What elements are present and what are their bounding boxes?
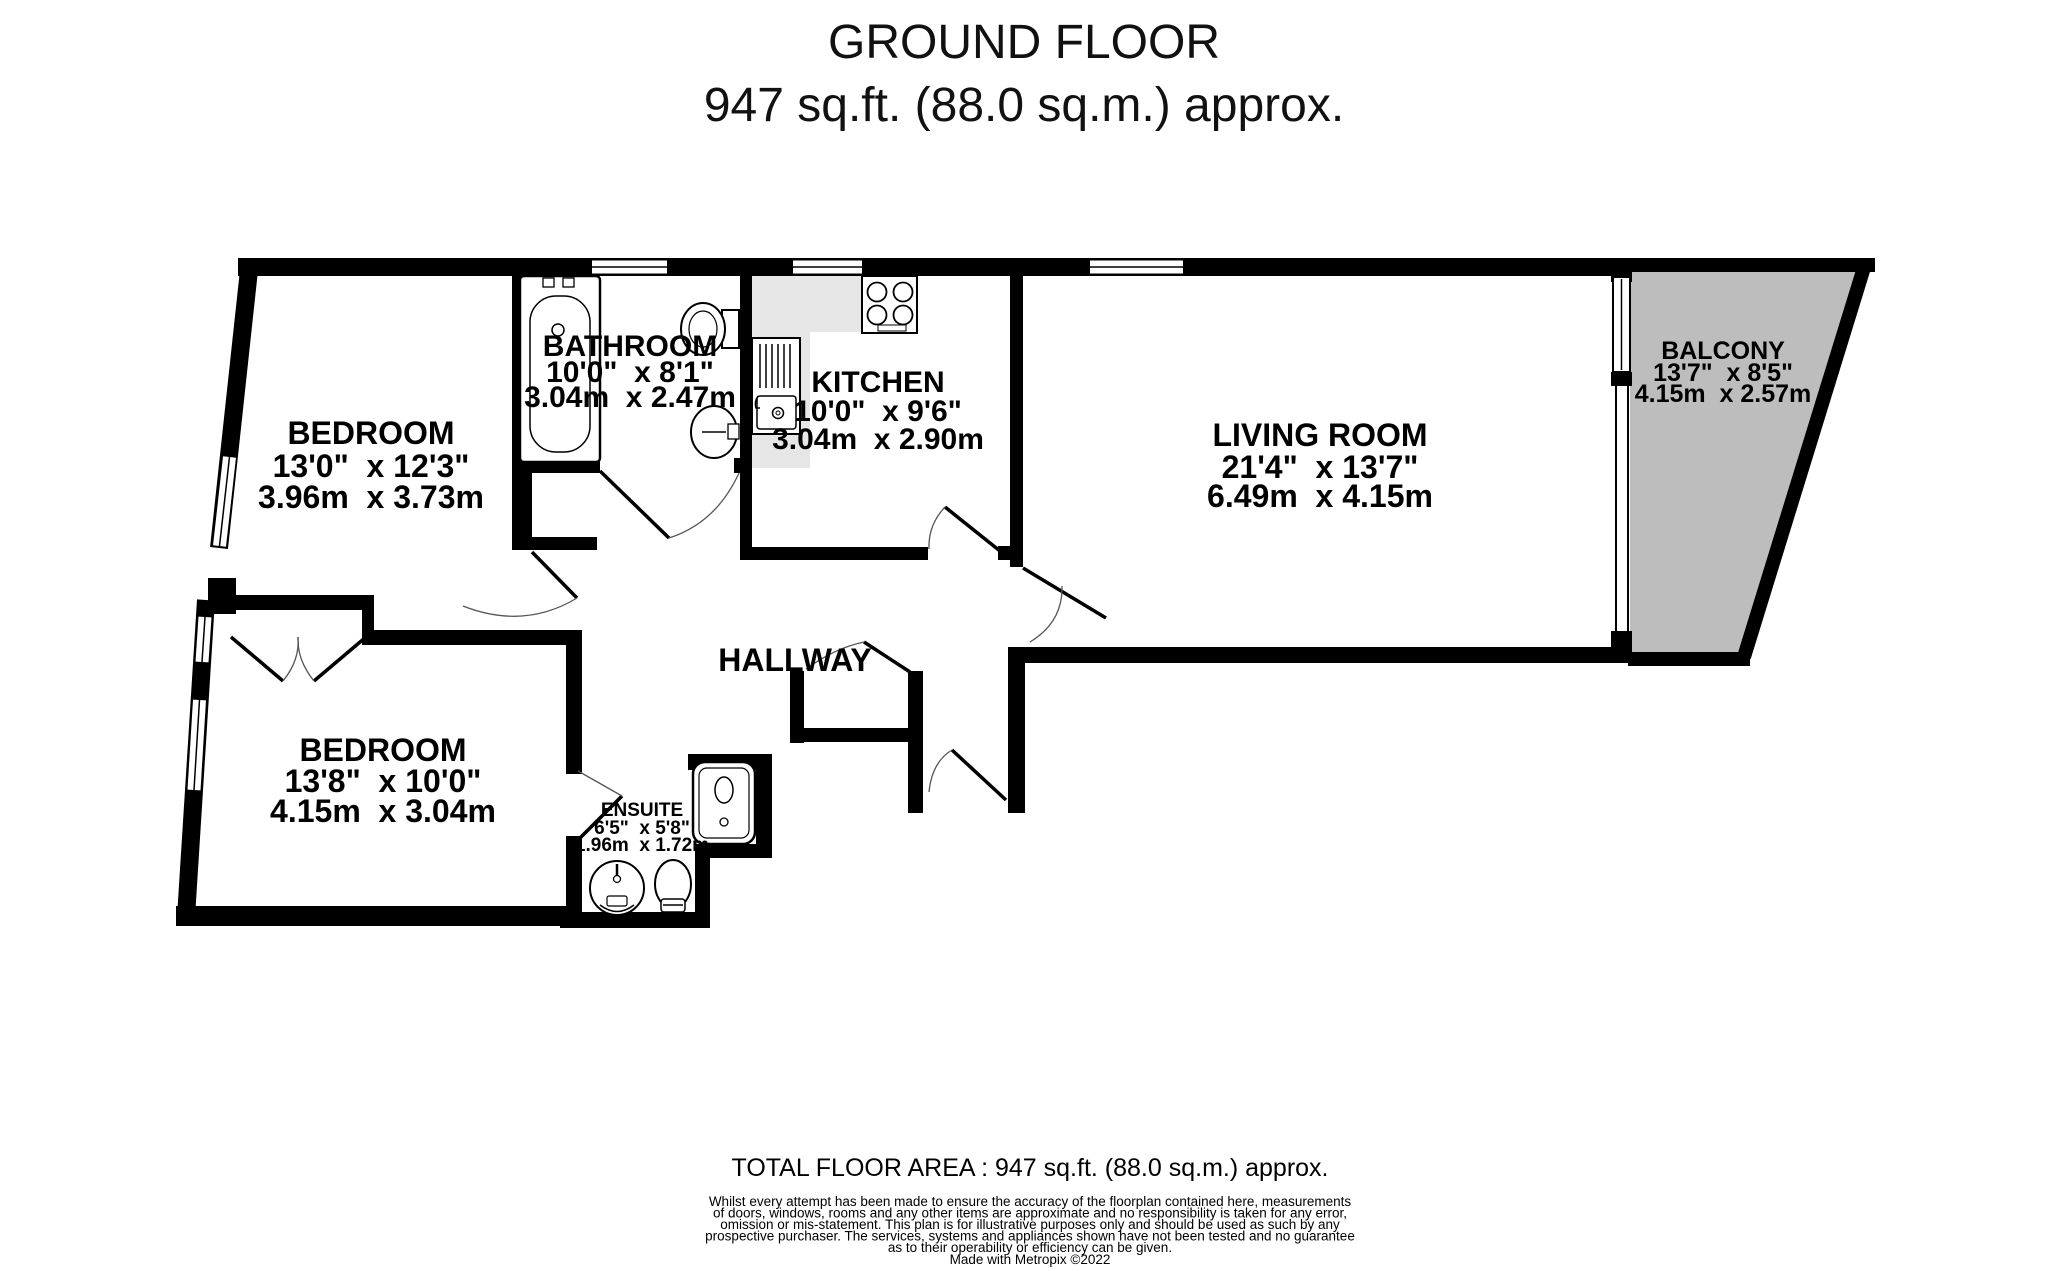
title-line1: GROUND FLOOR <box>828 16 1220 69</box>
room-labels: BEDROOM 13'0" x 12'3" 3.96m x 3.73m BATH… <box>258 330 1811 856</box>
bathroom-door <box>600 471 739 538</box>
floorplan-svg: GROUND FLOOR 947 sq.ft. (88.0 sq.m.) app… <box>0 0 2048 1271</box>
kitchen-door <box>929 507 1000 551</box>
ensuite-shower <box>693 762 755 844</box>
plan-title: GROUND FLOOR 947 sq.ft. (88.0 sq.m.) app… <box>704 16 1344 132</box>
kitchen-sink <box>752 338 800 434</box>
bedroom-top-metric: 3.96m x 3.73m <box>258 479 484 515</box>
total-floor-area: TOTAL FLOOR AREA : 947 sq.ft. (88.0 sq.m… <box>732 1154 1329 1182</box>
bedroom2-window-upper <box>202 617 205 662</box>
entrance-door <box>929 750 1006 800</box>
kitchen-hob <box>862 276 917 333</box>
bedroom-bottom-metric: 4.15m x 3.04m <box>270 793 496 829</box>
room-label-bathroom: BATHROOM 10'0" x 8'1" 3.04m x 2.47m <box>524 330 736 414</box>
room-label-bedroom-bottom: BEDROOM 13'8" x 10'0" 4.15m x 3.04m <box>270 732 496 829</box>
room-label-balcony: BALCONY 13'7" x 8'5" 4.15m x 2.57m <box>1635 337 1812 408</box>
bedroom1-door <box>463 552 577 616</box>
bedroom2-double-doors <box>231 637 366 681</box>
floorplan-page: GROUND FLOOR 947 sq.ft. (88.0 sq.m.) app… <box>0 0 2048 1271</box>
ensuite-toilet <box>655 860 691 912</box>
balcony-metric: 4.15m x 2.57m <box>1635 380 1812 408</box>
metropix-credit: Made with Metropix ©2022 <box>950 1252 1111 1267</box>
title-line2: 947 sq.ft. (88.0 sq.m.) approx. <box>704 79 1344 132</box>
bathroom-window <box>592 261 667 274</box>
living-room-door <box>1023 568 1106 642</box>
living-room-name: LIVING ROOM <box>1212 417 1427 453</box>
kitchen-metric: 3.04m x 2.90m <box>772 423 984 456</box>
room-label-hallway: HALLWAY <box>718 642 872 678</box>
room-label-bedroom-top: BEDROOM 13'0" x 12'3" 3.96m x 3.73m <box>258 415 484 515</box>
bathroom-metric: 3.04m x 2.47m <box>524 381 736 414</box>
ensuite-basin <box>590 861 644 915</box>
ensuite-metric: 1.96m x 1.72m <box>575 835 709 856</box>
bedroom2-window-lower <box>194 700 200 790</box>
footer: TOTAL FLOOR AREA : 947 sq.ft. (88.0 sq.m… <box>705 1154 1355 1267</box>
balcony-floor <box>1630 262 1869 658</box>
kitchen-window <box>793 261 862 274</box>
bedroom-top-name: BEDROOM <box>287 415 454 451</box>
room-label-living-room: LIVING ROOM 21'4" x 13'7" 6.49m x 4.15m <box>1207 417 1433 514</box>
living-room-window <box>1090 261 1183 274</box>
room-label-ensuite: ENSUITE 6'5" x 5'8" 1.96m x 1.72m <box>575 800 709 856</box>
living-room-metric: 6.49m x 4.15m <box>1207 478 1433 514</box>
